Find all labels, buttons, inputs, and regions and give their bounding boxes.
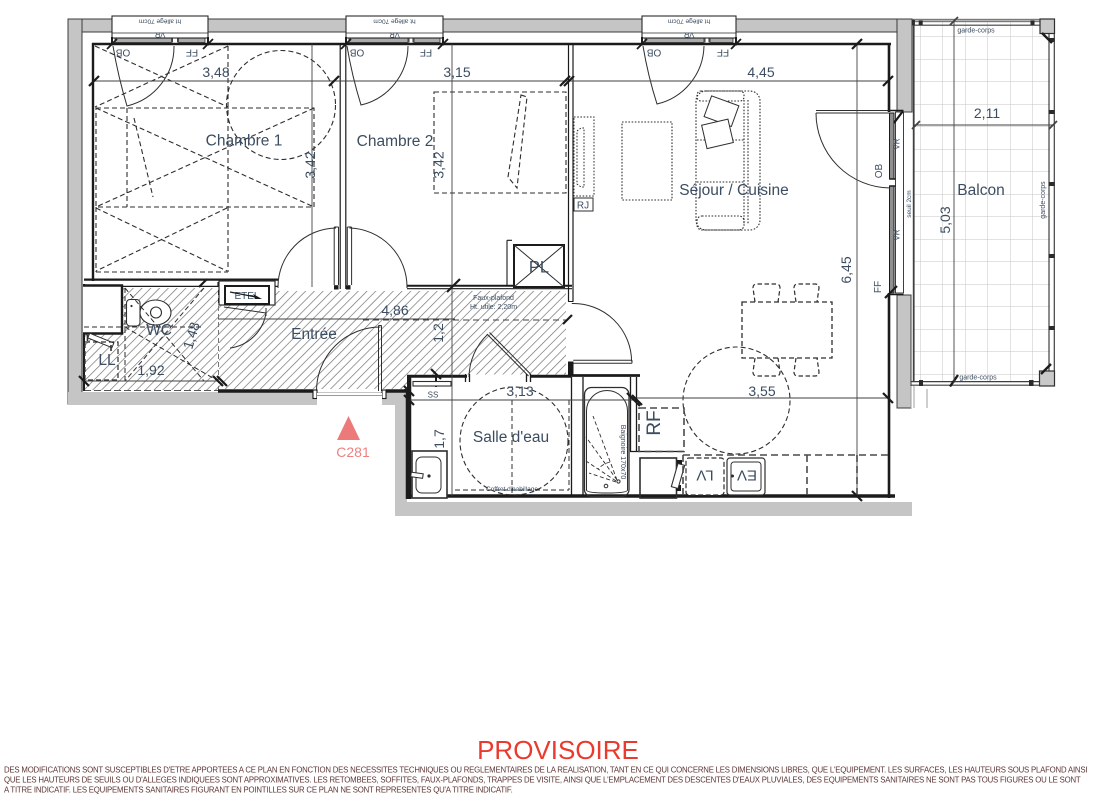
svg-text:garde-corps: garde-corps <box>957 28 995 35</box>
svg-text:2,11: 2,11 <box>974 105 1000 121</box>
svg-text:OB: OB <box>874 163 885 178</box>
svg-text:Chambre 2: Chambre 2 <box>357 133 434 150</box>
svg-text:4,45: 4,45 <box>747 64 774 80</box>
svg-text:3,42: 3,42 <box>302 151 318 178</box>
svg-text:Séjour / Cuisine: Séjour / Cuisine <box>679 182 788 199</box>
svg-text:FF: FF <box>873 281 884 293</box>
svg-text:6,45: 6,45 <box>838 256 854 283</box>
svg-text:DES MODIFICATIONS SONT SUSCEPT: DES MODIFICATIONS SONT SUSCEPTIBLES D'ET… <box>4 766 1087 775</box>
svg-text:ht allège 70cm: ht allège 70cm <box>139 17 181 24</box>
svg-text:1,7: 1,7 <box>431 429 447 449</box>
svg-text:VR: VR <box>893 138 902 149</box>
svg-text:1,92: 1,92 <box>137 362 164 378</box>
svg-text:5,03: 5,03 <box>937 206 953 233</box>
svg-text:3,15: 3,15 <box>443 64 470 80</box>
svg-text:WC: WC <box>146 322 172 339</box>
svg-text:FF: FF <box>186 47 198 58</box>
svg-text:3,48: 3,48 <box>202 64 229 80</box>
svg-text:VR: VR <box>893 229 902 240</box>
svg-text:A TITRE INDICATIF. LES EQUIPEM: A TITRE INDICATIF. LES EQUIPEMENTS SANIT… <box>4 786 513 795</box>
svg-text:3,13: 3,13 <box>506 383 533 399</box>
svg-text:Baignoire 170x70: Baignoire 170x70 <box>619 425 626 480</box>
svg-text:OB: OB <box>349 47 364 58</box>
svg-text:FF: FF <box>420 47 432 58</box>
svg-text:4,86: 4,86 <box>381 302 408 318</box>
svg-text:RF: RF <box>644 410 665 435</box>
svg-text:PROVISOIRE: PROVISOIRE <box>477 735 639 765</box>
svg-text:1,2: 1,2 <box>430 323 446 343</box>
svg-text:SS: SS <box>428 391 439 400</box>
svg-text:C281: C281 <box>336 444 370 460</box>
svg-text:ht allège 70cm: ht allège 70cm <box>668 17 710 24</box>
svg-text:QUE LES HAUTEURS DE SEUILS OU: QUE LES HAUTEURS DE SEUILS OU D'ALLEGES … <box>4 776 1081 785</box>
svg-text:garde-corps: garde-corps <box>959 375 997 382</box>
svg-text:Balcon: Balcon <box>957 182 1004 199</box>
svg-text:seuil 2cm: seuil 2cm <box>906 190 913 217</box>
svg-text:Chambre 1: Chambre 1 <box>206 133 283 150</box>
svg-text:RJ: RJ <box>577 201 589 212</box>
svg-text:garde-corps: garde-corps <box>1040 181 1047 219</box>
svg-text:Entrée: Entrée <box>291 326 337 343</box>
svg-text:Salle d'eau: Salle d'eau <box>473 429 549 446</box>
svg-text:LV: LV <box>696 467 713 484</box>
svg-text:Coffret d'habillage: Coffret d'habillage <box>486 486 538 493</box>
svg-text:OB: OB <box>115 47 130 58</box>
svg-text:EV: EV <box>737 467 757 484</box>
svg-text:LL: LL <box>98 352 116 369</box>
svg-text:ht allège 70cm: ht allège 70cm <box>373 17 415 24</box>
svg-text:3,55: 3,55 <box>748 383 775 399</box>
svg-text:Ht. utile: 2,20m: Ht. utile: 2,20m <box>470 304 517 311</box>
svg-text:Faux-plafond: Faux-plafond <box>473 295 514 302</box>
svg-text:PL: PL <box>529 259 549 277</box>
svg-text:OB: OB <box>646 47 661 58</box>
svg-text:3,42: 3,42 <box>431 151 447 178</box>
svg-text:FF: FF <box>717 47 729 58</box>
